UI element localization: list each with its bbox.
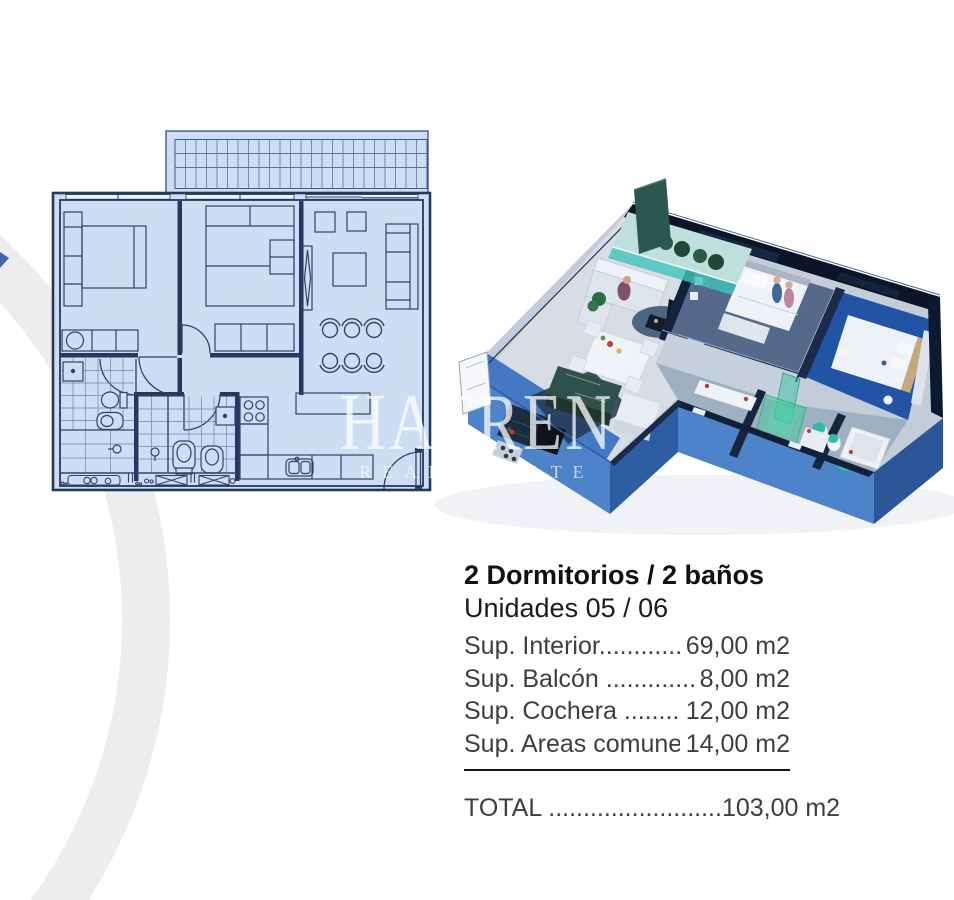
area-row: Sup. Balcón ................ 8,00 m2 [464, 663, 790, 696]
person-sitting [618, 282, 631, 301]
unit-title: 2 Dormitorios / 2 baños [464, 558, 790, 592]
area-label: Sup. Interior................ [464, 630, 680, 663]
shower-head-2 [151, 448, 159, 456]
area-label: Sup. Cochera ............. [464, 695, 680, 728]
area-value: 8,00 m2 [700, 663, 790, 696]
unit-specs: 2 Dormitorios / 2 baños Unidades 05 / 06… [464, 558, 790, 823]
divider-rule [464, 769, 790, 771]
area-value: 69,00 m2 [686, 630, 790, 663]
privacy-screen [634, 179, 671, 254]
area-row: Sup. Cochera ............. 12,00 m2 [464, 695, 790, 728]
person-standing-1 [772, 283, 782, 303]
shower-head [113, 445, 121, 453]
render-3d [435, 179, 954, 535]
total-row: TOTAL ......................... 103,00 m… [464, 793, 790, 823]
area-value: 12,00 m2 [686, 695, 790, 728]
area-label: Sup. Balcón ................ [464, 663, 694, 696]
area-row: Sup. Areas comunes. 14,00 m2 [464, 728, 790, 761]
area-value: 14,00 m2 [686, 728, 790, 761]
area-label: Sup. Areas comunes. [464, 728, 680, 761]
floor-plan-2d [53, 131, 430, 490]
total-value: 103,00 m2 [722, 793, 840, 823]
bath1-toilet [102, 392, 119, 408]
person-standing-2 [784, 288, 794, 308]
door-panel-3d [459, 352, 491, 414]
total-label: TOTAL ......................... [464, 793, 722, 823]
area-row: Sup. Interior................ 69,00 m2 [464, 630, 790, 663]
brochure-page: HAFREN REAL ESTATE 2 Dormitorios / 2 bañ… [0, 0, 954, 900]
terrace-deck [166, 131, 428, 194]
unit-subtitle: Unidades 05 / 06 [464, 592, 790, 625]
window-bands [66, 195, 418, 200]
